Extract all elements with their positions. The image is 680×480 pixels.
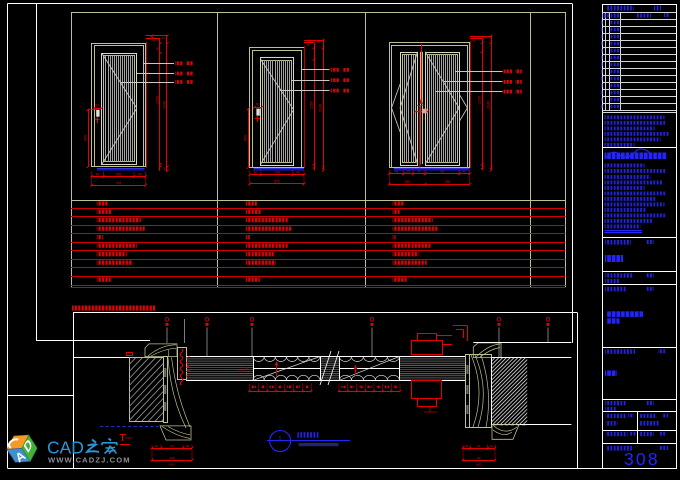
svg-text:M01: M01: [169, 463, 175, 467]
svg-text:40: 40: [417, 170, 421, 174]
svg-text:2340: 2340: [163, 101, 167, 109]
svg-text:90: 90: [472, 39, 476, 43]
svg-text:745: 745: [440, 170, 445, 174]
svg-text:45: 45: [484, 36, 488, 40]
svg-text:90: 90: [152, 39, 156, 43]
svg-text:40: 40: [96, 172, 100, 176]
svg-text:900: 900: [83, 135, 87, 141]
svg-text:40: 40: [163, 167, 167, 171]
svg-text:18: 18: [244, 367, 248, 371]
svg-text:20: 20: [155, 444, 159, 448]
svg-text:WWW.CADZJ.COM: WWW.CADZJ.COM: [48, 456, 131, 465]
svg-text:45: 45: [317, 40, 321, 44]
svg-text:2250: 2250: [478, 96, 482, 104]
svg-text:50: 50: [95, 104, 99, 108]
svg-text:20: 20: [465, 444, 469, 448]
svg-text:60: 60: [170, 444, 174, 448]
svg-text:80: 80: [477, 456, 481, 460]
svg-text:40: 40: [463, 170, 467, 174]
svg-text:CAD: CAD: [47, 438, 84, 458]
svg-text:745: 745: [274, 171, 280, 175]
svg-text:5: 5: [423, 117, 425, 121]
svg-text:785: 785: [445, 180, 451, 184]
svg-text:40: 40: [395, 170, 399, 174]
svg-text:2340: 2340: [486, 101, 490, 109]
svg-text:945: 945: [116, 181, 122, 185]
svg-text:40: 40: [477, 444, 481, 448]
svg-text:50: 50: [256, 103, 260, 107]
svg-text:90: 90: [156, 47, 160, 51]
svg-text:2250: 2250: [156, 96, 160, 104]
svg-text:90: 90: [306, 43, 310, 47]
svg-text:245: 245: [406, 170, 411, 174]
svg-text:M02: M02: [476, 463, 482, 467]
svg-text:20: 20: [490, 444, 494, 448]
svg-text:2250: 2250: [309, 101, 313, 109]
svg-text:100: 100: [169, 456, 174, 460]
svg-text:2340: 2340: [319, 104, 323, 112]
svg-text:900: 900: [244, 135, 248, 141]
svg-text:40: 40: [297, 171, 301, 175]
svg-text:20: 20: [186, 444, 190, 448]
svg-text:308: 308: [624, 449, 660, 469]
svg-text:45: 45: [161, 36, 165, 40]
svg-text:40: 40: [138, 172, 142, 176]
svg-text:825: 825: [274, 180, 280, 184]
svg-text:40: 40: [254, 171, 258, 175]
svg-text:865: 865: [116, 172, 122, 176]
svg-text:285: 285: [405, 180, 411, 184]
